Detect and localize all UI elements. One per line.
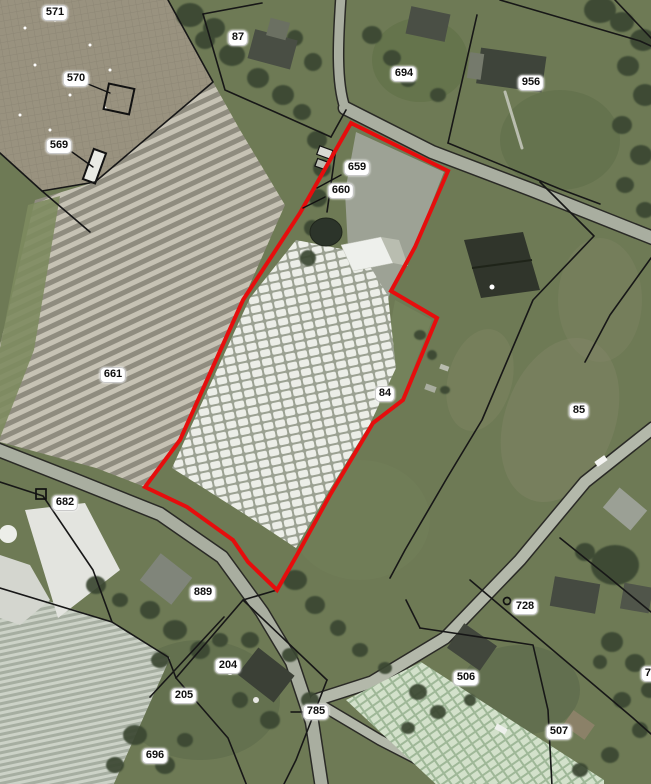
pond-silo <box>310 218 342 246</box>
aerial-basemap <box>0 0 651 784</box>
aerial-map-canvas[interactable]: 5715705698769495665966066184856828892042… <box>0 0 651 784</box>
